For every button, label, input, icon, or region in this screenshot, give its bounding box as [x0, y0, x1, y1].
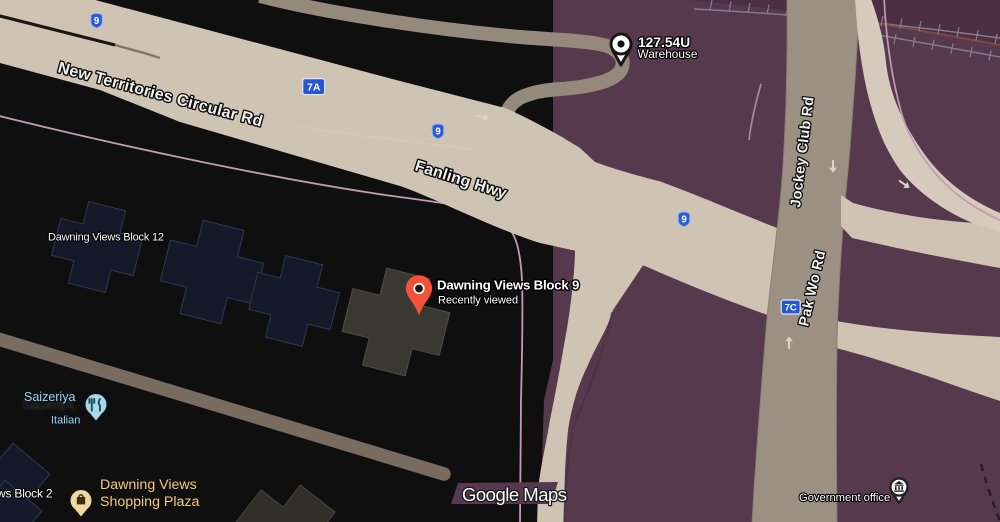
- svg-text:Government office: Government office: [799, 492, 890, 504]
- svg-text:7A: 7A: [307, 81, 321, 93]
- svg-text:Saizeriya: Saizeriya: [24, 390, 75, 404]
- svg-text:Dawning Views Block 12: Dawning Views Block 12: [48, 232, 164, 244]
- svg-text:9: 9: [681, 214, 687, 225]
- svg-text:Dawning Views Block 9: Dawning Views Block 9: [437, 278, 579, 293]
- svg-text:9: 9: [435, 126, 441, 137]
- svg-text:Italian: Italian: [51, 415, 80, 427]
- svg-text:Google Maps: Google Maps: [462, 484, 567, 505]
- svg-text:Recently viewed: Recently viewed: [438, 295, 518, 307]
- svg-text:7C: 7C: [785, 302, 797, 313]
- svg-text:ws Block 2: ws Block 2: [0, 487, 53, 501]
- svg-text:Dawning Views: Dawning Views: [100, 477, 197, 493]
- svg-text:9: 9: [94, 16, 100, 27]
- svg-text:Shopping Plaza: Shopping Plaza: [100, 494, 199, 510]
- svg-text:Warehouse: Warehouse: [638, 47, 698, 61]
